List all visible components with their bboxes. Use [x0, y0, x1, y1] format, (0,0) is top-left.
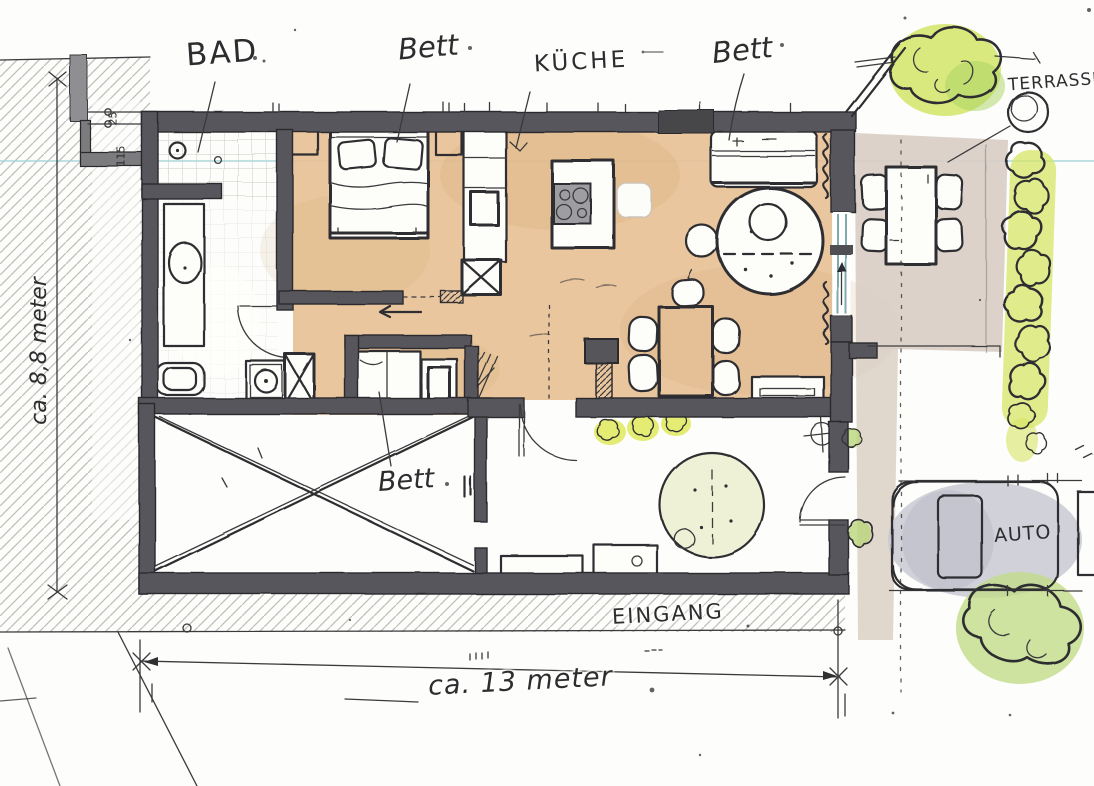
chair: [628, 316, 658, 351]
pillow: [383, 137, 423, 169]
chair: [935, 174, 963, 210]
label-entrance: EINGANG: [612, 601, 725, 628]
label-car: AUTO: [993, 523, 1052, 546]
oven-icon: [471, 192, 498, 225]
bush-icon: [1008, 92, 1048, 132]
chair: [628, 354, 658, 391]
label-bedroom-middle: Bett: [377, 465, 435, 496]
chair: [712, 360, 740, 396]
label-bedroom-top: Bett: [397, 30, 460, 64]
mat: [594, 545, 657, 576]
label-dimension-depth: ca. 8,8 meter: [29, 221, 51, 481]
chair: [712, 318, 740, 354]
entrance-door-arc: [520, 404, 576, 460]
pillow: [338, 139, 377, 170]
label-offset-115: 115: [116, 137, 127, 167]
label-offset-25: 25: [108, 100, 119, 126]
sofa-bed: [711, 131, 817, 187]
chair: [671, 279, 705, 307]
chair: [935, 218, 963, 251]
label-kitchen: KÜCHE: [533, 49, 628, 77]
bathroom: [156, 133, 290, 401]
label-bathroom: BAD: [185, 36, 259, 72]
side-door-arc: [800, 477, 845, 522]
label-sofa-bed: Bett: [711, 33, 774, 68]
floor-plan-scan: BAD Bett KÜCHE Bett TERRASSE Bett EINGAN…: [0, 0, 1094, 786]
